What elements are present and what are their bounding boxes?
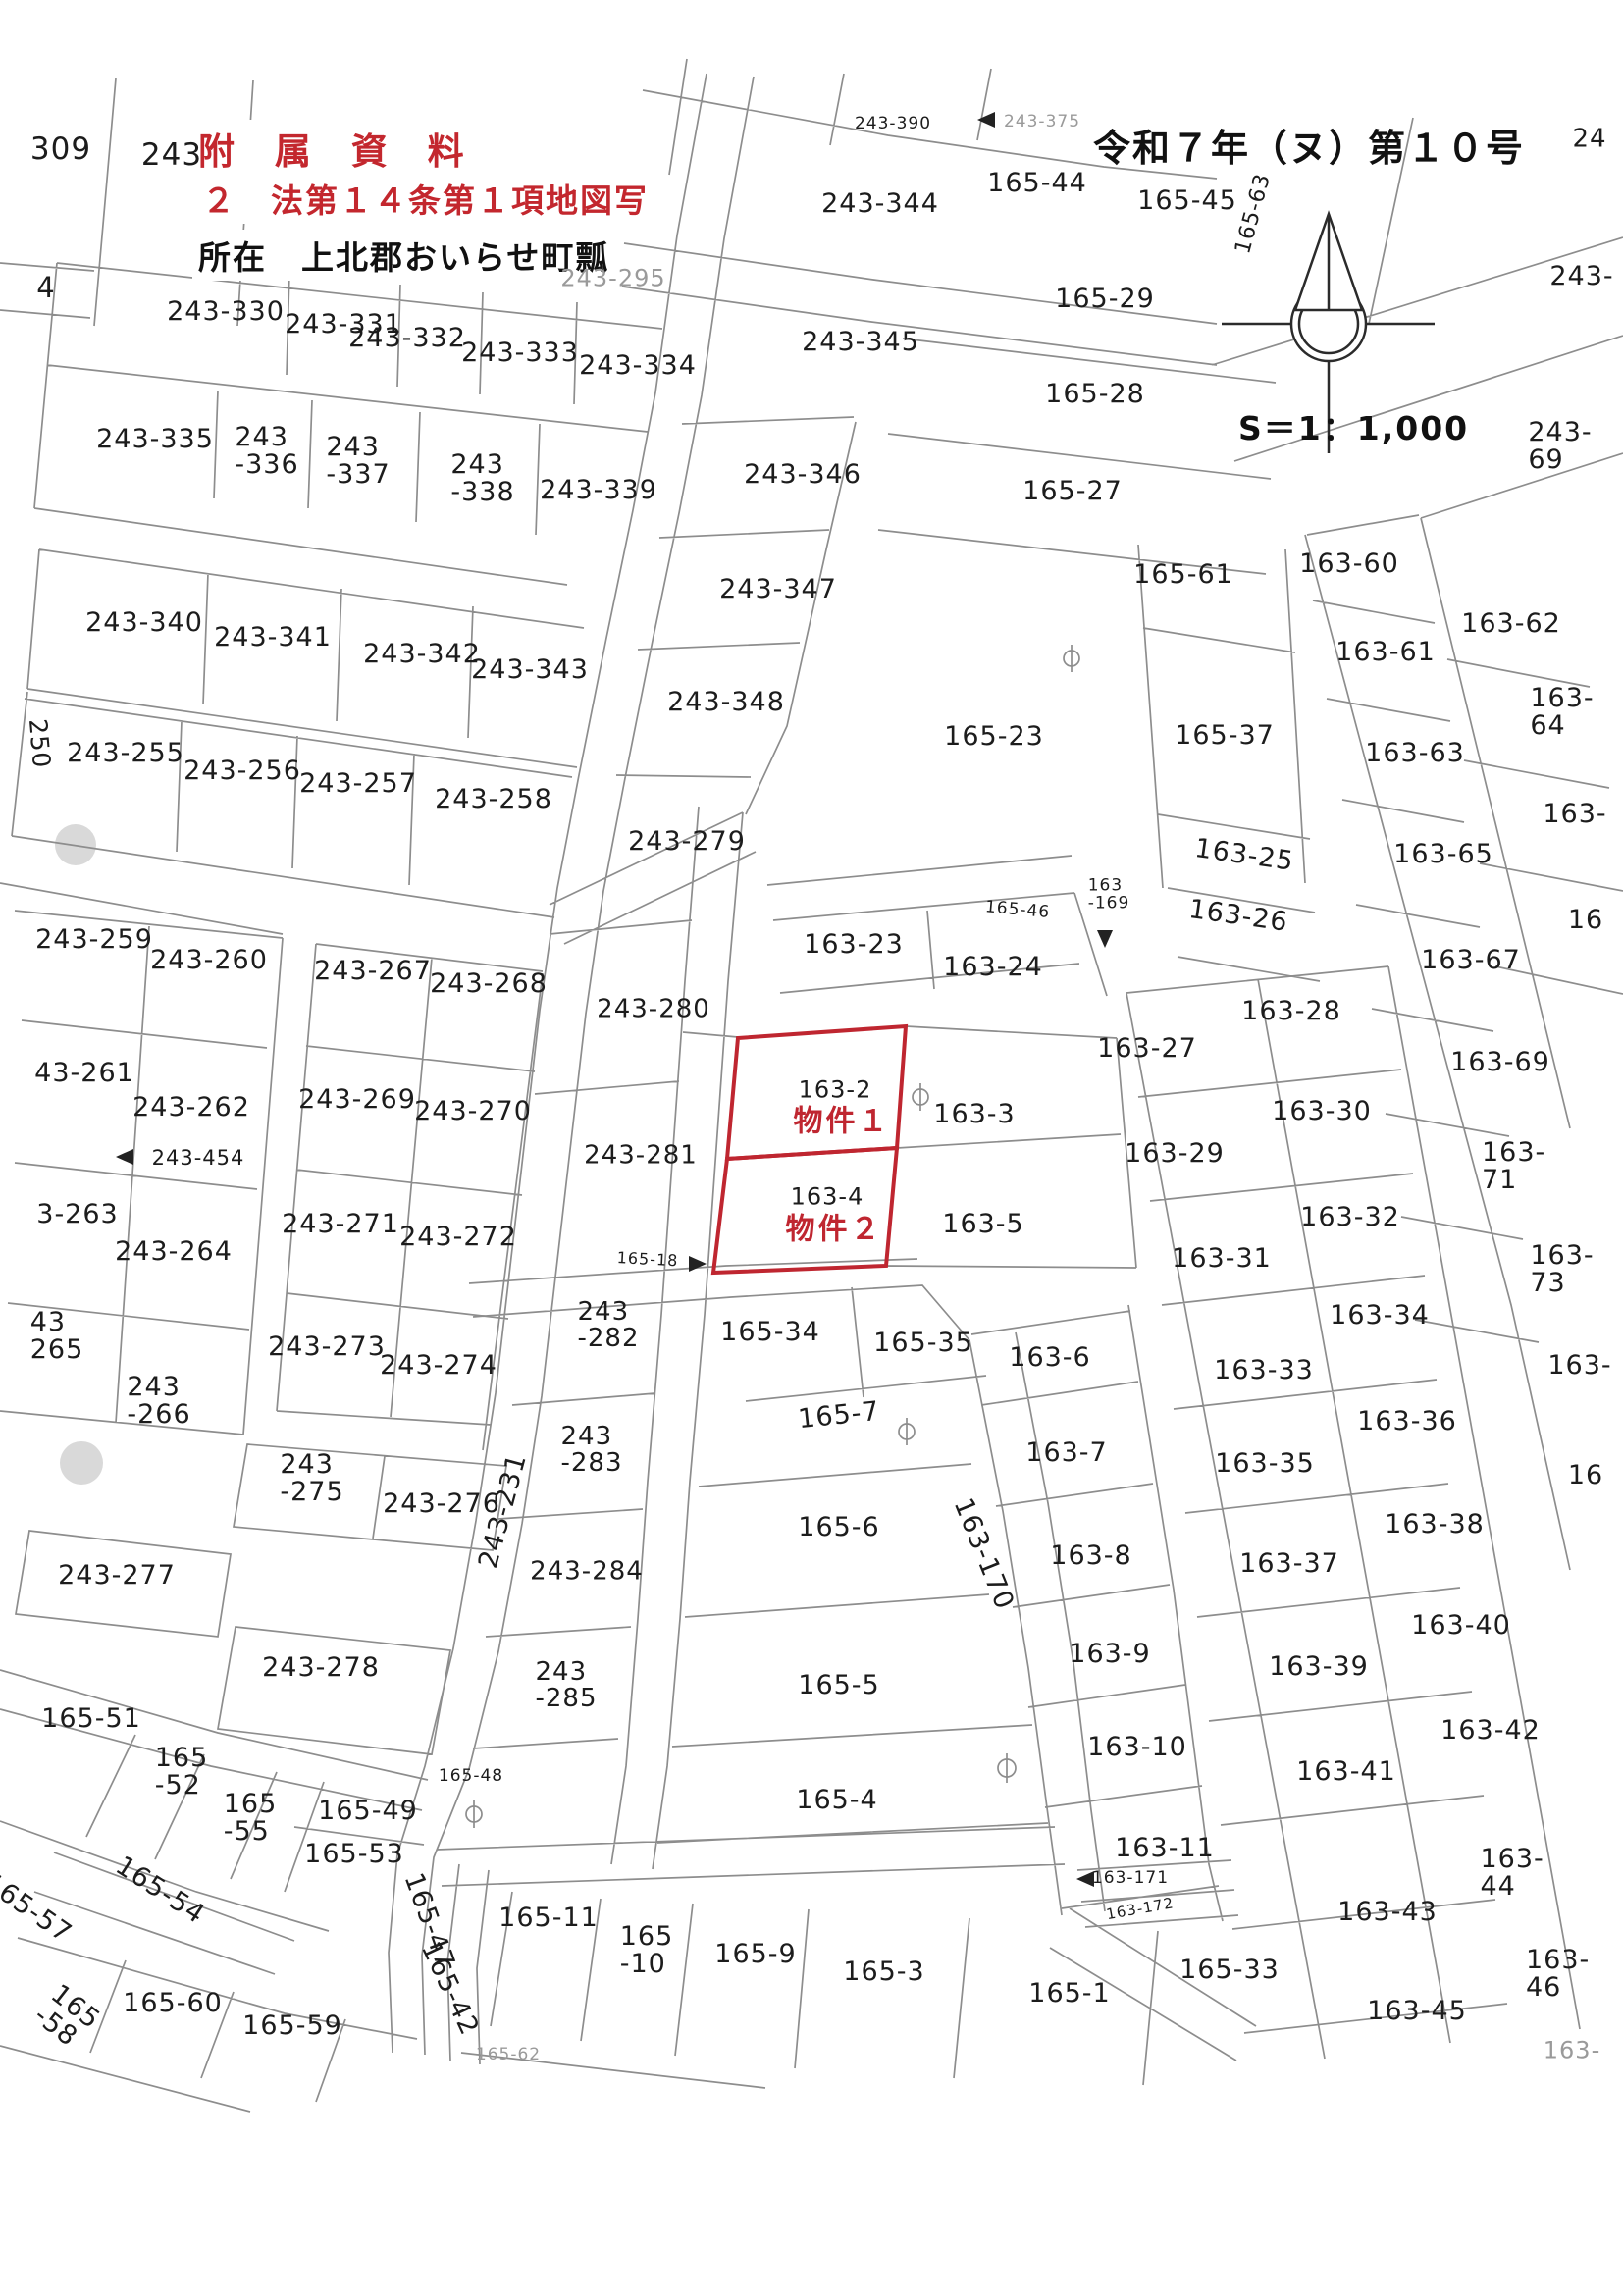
parcel-label: 163-8 bbox=[1050, 1542, 1131, 1570]
parcel-label: 165-44 bbox=[987, 170, 1087, 197]
parcel-label: 243-279 bbox=[628, 828, 746, 856]
parcel-label: 165-62 bbox=[476, 2047, 541, 2064]
location-line: 所在 上北郡おいらせ町瓢 bbox=[192, 230, 615, 281]
parcel-label: 165-60 bbox=[123, 1990, 223, 2017]
parcel-label: 163 -169 bbox=[1088, 877, 1130, 912]
parcel-label: 243-340 bbox=[85, 609, 203, 637]
parcel-label: 243-390 bbox=[855, 116, 931, 133]
parcel-label: 165-61 bbox=[1133, 561, 1233, 589]
parcel-label: 163-30 bbox=[1272, 1098, 1372, 1125]
subject-parcel-tag-1: 物件１ bbox=[794, 1106, 891, 1136]
parcel-label: 163-10 bbox=[1087, 1734, 1187, 1761]
parcel-label: 163-24 bbox=[943, 954, 1043, 981]
parcel-label: 165-4 bbox=[796, 1787, 877, 1814]
parcel-label: 243-270 bbox=[414, 1098, 532, 1125]
parcel-label: 243-258 bbox=[435, 786, 552, 813]
parcel-label: 243 bbox=[141, 139, 202, 171]
parcel-label: 163-43 bbox=[1337, 1899, 1438, 1926]
parcel-label: 163- bbox=[1543, 801, 1606, 828]
parcel-label: 243-273 bbox=[268, 1333, 386, 1361]
parcel-label: 163-31 bbox=[1172, 1245, 1272, 1273]
parcel-label: 243-69 bbox=[1528, 419, 1592, 474]
parcel-label: 165-37 bbox=[1175, 722, 1275, 750]
parcel-label: 243-274 bbox=[380, 1352, 497, 1380]
parcel-label: 243-260 bbox=[150, 947, 268, 974]
parcel-label: 163-9 bbox=[1069, 1641, 1150, 1668]
parcel-label: 163-62 bbox=[1461, 610, 1561, 638]
parcel-label: 243-255 bbox=[67, 740, 184, 767]
parcel-label: 243-342 bbox=[363, 641, 481, 668]
parcel-label: 165-9 bbox=[714, 1941, 796, 1968]
parcel-label: 243-295 bbox=[560, 267, 665, 291]
parcel-label: 243 -275 bbox=[280, 1451, 343, 1506]
case-number: 令和７年（ヌ）第１０号 bbox=[1087, 116, 1531, 174]
parcel-label: 165-33 bbox=[1179, 1957, 1280, 1984]
parcel-label: 243- bbox=[1549, 263, 1613, 290]
parcel-label: 243-334 bbox=[579, 352, 697, 380]
parcel-label: 163-60 bbox=[1299, 550, 1399, 578]
parcel-label: 243-341 bbox=[214, 624, 332, 652]
parcel-label: 243-348 bbox=[667, 689, 785, 716]
parcel-label: 163-11 bbox=[1115, 1835, 1215, 1862]
parcel-label: 165-27 bbox=[1022, 478, 1123, 505]
parcel-label: 165 -10 bbox=[620, 1923, 674, 1978]
parcel-label: 243-335 bbox=[96, 426, 214, 453]
parcel-label: 243-271 bbox=[282, 1211, 399, 1238]
parcel-label: 16 bbox=[1568, 907, 1603, 934]
parcel-label: 43 265 bbox=[30, 1309, 84, 1364]
parcel-label: 243-345 bbox=[802, 329, 919, 356]
parcel-label: 243-375 bbox=[1004, 114, 1080, 131]
parcel-label: 243-269 bbox=[298, 1086, 416, 1114]
parcel-label: 163-27 bbox=[1097, 1035, 1197, 1063]
parcel-label: 163-69 bbox=[1450, 1049, 1550, 1076]
parcel-label: 163-63 bbox=[1365, 740, 1465, 767]
parcel-label: 165-1 bbox=[1028, 1980, 1110, 2008]
parcel-label: 163-73 bbox=[1530, 1242, 1594, 1297]
parcel-label: 163-38 bbox=[1385, 1511, 1485, 1539]
parcel-label: 163-23 bbox=[804, 931, 904, 959]
parcel-label: 163-45 bbox=[1367, 1998, 1467, 2025]
parcel-label: 165-5 bbox=[798, 1672, 879, 1699]
parcel-label: 243 -282 bbox=[577, 1299, 639, 1352]
parcel-label: 243-272 bbox=[399, 1224, 517, 1251]
parcel-label: 243 -266 bbox=[127, 1374, 190, 1429]
parcel-label: 165-3 bbox=[843, 1958, 924, 1986]
parcel-label: 243-264 bbox=[115, 1238, 233, 1266]
parcel-label: 16 bbox=[1568, 1462, 1603, 1489]
parcel-label: 243-330 bbox=[167, 298, 285, 326]
parcel-label: 163- bbox=[1547, 1352, 1611, 1380]
parcel-label: 163-6 bbox=[1009, 1344, 1090, 1372]
parcel-label: 163-4 bbox=[791, 1185, 864, 1210]
parcel-label: 163-44 bbox=[1481, 1846, 1576, 1901]
parcel-label: 165-11 bbox=[498, 1905, 599, 1932]
parcel-label: 165-34 bbox=[720, 1319, 820, 1346]
parcel-label: 163- bbox=[1544, 2039, 1600, 2063]
parcel-label: 163-37 bbox=[1239, 1550, 1339, 1578]
parcel-label: 165-49 bbox=[318, 1798, 418, 1825]
parcel-label: 243 -338 bbox=[450, 451, 514, 506]
parcel-label: 243-278 bbox=[262, 1654, 380, 1682]
parcel-label: 163-29 bbox=[1125, 1140, 1225, 1168]
parcel-label: 165-48 bbox=[439, 1768, 503, 1786]
parcel-label: 250 bbox=[25, 718, 54, 770]
parcel-label: 24 bbox=[1572, 126, 1606, 152]
parcel-label: 165-59 bbox=[242, 2012, 342, 2040]
parcel-label: 4 bbox=[36, 273, 55, 302]
parcel-label: 163-40 bbox=[1411, 1612, 1511, 1640]
parcel-label: 243-267 bbox=[314, 958, 432, 985]
attachment-title: 附 属 資 料 bbox=[192, 120, 484, 177]
parcel-label: 243-339 bbox=[540, 477, 657, 504]
parcel-label: 243-268 bbox=[430, 970, 548, 998]
parcel-label: 309 bbox=[30, 133, 91, 165]
parcel-label: 165-29 bbox=[1055, 286, 1155, 313]
parcel-label: 243-256 bbox=[183, 757, 301, 785]
parcel-label: 243-333 bbox=[461, 339, 579, 367]
parcel-label: 163-5 bbox=[942, 1211, 1023, 1238]
parcel-label: 163-42 bbox=[1440, 1717, 1541, 1745]
parcel-label: 243 -283 bbox=[560, 1424, 622, 1477]
parcel-label: 163-71 bbox=[1482, 1139, 1576, 1194]
parcel-label: 243-332 bbox=[348, 325, 466, 352]
parcel-label: 243-259 bbox=[35, 926, 153, 954]
parcel-label: 243-344 bbox=[821, 190, 939, 218]
parcel-label: 243-257 bbox=[299, 770, 417, 798]
parcel-label: 163-28 bbox=[1241, 998, 1341, 1025]
parcel-label: 163-33 bbox=[1214, 1357, 1314, 1384]
parcel-label: 163-36 bbox=[1357, 1408, 1457, 1435]
parcel-label: 243 -336 bbox=[235, 424, 298, 479]
parcel-label: 165-23 bbox=[944, 723, 1044, 751]
parcel-label: 163-35 bbox=[1215, 1450, 1315, 1478]
manhole-circle bbox=[60, 1441, 103, 1485]
cadastral-map-page: 附 属 資 料 ２ 法第１４条第１項地図写 所在 上北郡おいらせ町瓢 令和７年（… bbox=[0, 0, 1623, 2296]
parcel-label: 243-454 bbox=[152, 1148, 245, 1170]
parcel-label: 163-46 bbox=[1526, 1947, 1591, 2002]
parcel-label: 243-343 bbox=[471, 656, 589, 684]
parcel-label: 163-34 bbox=[1330, 1302, 1430, 1330]
parcel-label: 163-39 bbox=[1269, 1653, 1369, 1681]
parcel-label: 243-281 bbox=[584, 1142, 698, 1169]
parcel-label: 163-32 bbox=[1300, 1204, 1400, 1231]
parcel-label: 243 -337 bbox=[326, 434, 390, 489]
parcel-label: 163-65 bbox=[1393, 841, 1493, 868]
parcel-label: 163-67 bbox=[1421, 947, 1521, 974]
parcel-label: 243-346 bbox=[744, 461, 862, 489]
parcel-label: 163-7 bbox=[1025, 1439, 1107, 1467]
parcel-label: 165 -52 bbox=[155, 1745, 209, 1800]
parcel-label: 165 -55 bbox=[224, 1791, 278, 1846]
law-reference-title: ２ 法第１４条第１項地図写 bbox=[196, 173, 654, 224]
parcel-label: 243-280 bbox=[597, 996, 710, 1022]
parcel-label: 165-51 bbox=[41, 1705, 141, 1733]
parcel-label: 243-262 bbox=[132, 1094, 250, 1122]
subject-parcel-tag-2: 物件２ bbox=[786, 1214, 883, 1244]
parcel-label: 165-28 bbox=[1045, 381, 1145, 408]
parcel-label: 163-171 bbox=[1092, 1870, 1169, 1888]
parcel-label: 243-276 bbox=[383, 1490, 500, 1518]
parcel-label: 163-41 bbox=[1296, 1758, 1396, 1786]
parcel-label: 243-284 bbox=[530, 1558, 644, 1585]
parcel-label: 43-261 bbox=[34, 1060, 134, 1087]
parcel-label: 163-61 bbox=[1335, 639, 1436, 666]
parcel-label: 165-18 bbox=[616, 1250, 678, 1270]
parcel-label: 243-347 bbox=[719, 576, 837, 603]
parcel-label: 163-3 bbox=[933, 1101, 1015, 1128]
parcel-label: 163-2 bbox=[799, 1078, 872, 1103]
parcel-label: 165-6 bbox=[798, 1514, 879, 1541]
parcel-label: 3-263 bbox=[36, 1201, 118, 1228]
map-scale: S＝1：1,000 bbox=[1232, 400, 1475, 451]
parcel-label: 243-277 bbox=[58, 1562, 176, 1590]
parcel-label: 243 -285 bbox=[535, 1659, 597, 1712]
parcel-label: 165-53 bbox=[304, 1841, 404, 1868]
parcel-label: 165-45 bbox=[1137, 187, 1237, 215]
parcel-label: 163-64 bbox=[1530, 685, 1594, 740]
parcel-label: 165-35 bbox=[873, 1330, 973, 1357]
